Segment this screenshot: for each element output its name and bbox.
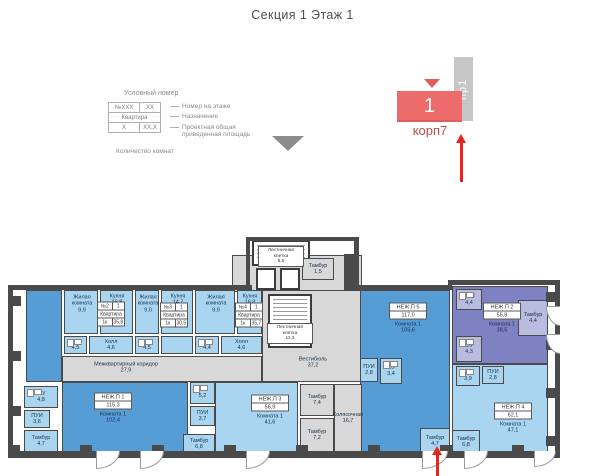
room-label-line: 2,8: [363, 370, 374, 376]
arrow-line: [436, 455, 439, 476]
unit5-pui: ПУИ2,8: [360, 358, 378, 382]
room-label-line: 4,6: [235, 345, 248, 351]
toilet-fixture: [27, 389, 34, 397]
room-label: Жилаякомната9,9: [72, 294, 93, 313]
room-label: Колясочная16,7: [333, 412, 363, 425]
living-room-2: Жилаякомната9,0: [135, 290, 159, 334]
hall-apt3: [161, 336, 193, 354]
unit-tag-line: НЕЖ.П 2: [484, 304, 520, 312]
room-label-line: 4,6: [105, 345, 118, 351]
sink-fixture: [466, 339, 474, 345]
room-label: ПУИ3,7: [197, 410, 208, 423]
unit5-wc: С/У3,4: [380, 358, 402, 384]
apt-tag-row: №31: [161, 304, 187, 312]
room-label-line: 5,2: [198, 393, 207, 399]
room-label-line: 4,4: [463, 300, 474, 306]
unit3-wc: С/У5,2: [190, 382, 215, 404]
apt-tag-cell: Квартира: [98, 311, 124, 318]
unit4-pui: ПУИ2,8: [482, 366, 504, 384]
floor-plan-page: Секция 1 Этаж 1 Условный номер №XXX XX К…: [0, 0, 605, 476]
stair-label: Лестничная клетка5,5: [258, 246, 304, 267]
room-label: Холл4,6: [235, 339, 248, 352]
toilet-fixture: [193, 385, 200, 393]
room-label: Тамбур7,2: [308, 429, 327, 442]
wc-apt3: С/У4,5: [135, 336, 159, 354]
apt4-tag: №41Квартира1к35,7: [235, 303, 263, 328]
tambour-top: Тамбур1,5: [302, 258, 334, 280]
apt-tag-cell: 1к: [161, 320, 176, 327]
unit1-wc: С/У4,8: [24, 386, 58, 408]
room-label: Тамбур1,5: [309, 263, 328, 276]
stair-upper: Лестничная клетка5,5: [252, 240, 310, 266]
wall: [358, 285, 452, 290]
room-label-line: 4,8: [37, 397, 46, 403]
unit1-strip: [26, 290, 62, 382]
apt-tag-cell: 1: [113, 303, 124, 310]
stair-label-line: 11,3: [270, 336, 310, 342]
unit-tag-line: 56,9: [252, 404, 288, 411]
apt2-tag: №21Квартира1к35,8: [97, 302, 125, 327]
apt-tag-cell: 1к: [236, 320, 251, 327]
sink-fixture: [466, 369, 474, 375]
room-label-line: 2,8: [487, 375, 498, 381]
apt-tag-row: 1к30,5: [161, 320, 187, 327]
apt-tag-cell: 35,7: [251, 320, 262, 327]
unit-tag-sub: Комната 1105,6: [389, 322, 427, 334]
arrow-head-icon: [432, 446, 442, 455]
room-label-line: 9,9: [206, 307, 227, 313]
unit2-tag: НЕЖ.П 255,8Комната 138,5: [483, 303, 521, 334]
unit1-tag: НЕЖ.П 1115,3Комната 1102,4: [94, 393, 132, 424]
room-label-line: 37,2: [299, 363, 327, 369]
unit-tag-subline: 38,5: [483, 328, 521, 334]
wall: [8, 285, 252, 290]
unit-tag-line: 115,3: [95, 402, 131, 409]
apt-tag-cell: 1к: [98, 319, 113, 326]
stair-main: Лестничная клетка11,3: [268, 294, 312, 348]
apt-tag-cell: 1: [251, 304, 262, 311]
hall-apt2: Холл4,6: [89, 336, 133, 354]
stair-label-line: 5,5: [261, 259, 301, 265]
wall: [246, 237, 358, 241]
room-label-line: 3,7: [197, 416, 208, 422]
wall: [354, 237, 359, 290]
unit2-tambour: Тамбур4,4: [518, 300, 548, 336]
elevator-2: [280, 268, 300, 290]
apt-tag-row: Квартира: [236, 312, 262, 320]
unit-tag-line: 117,0: [390, 312, 426, 319]
apt-tag-cell: 35,8: [113, 319, 124, 326]
toilet-fixture: [459, 369, 466, 377]
unit-tag-box: НЕЖ.П 462,1: [494, 403, 532, 420]
unit-tag-sub: Комната 141,6: [251, 414, 289, 426]
unit2-pui: ПУИ4,4: [456, 289, 482, 310]
unit-tag-sub: Комната 147,1: [494, 422, 532, 434]
unit-tag-line: НЕЖ.П 4: [495, 404, 531, 412]
room-label-line: 7,4: [308, 400, 327, 406]
wc-apt4: С/У4,4: [195, 336, 219, 354]
unit1-pui: ПУИ3,6: [24, 410, 50, 428]
sink-fixture: [205, 339, 213, 345]
stair-label-line: Лестничная клетка: [261, 248, 301, 259]
toilet-fixture: [138, 339, 145, 347]
room-label-line: 3,4: [387, 371, 396, 377]
apt-tag-row: №41: [236, 304, 262, 312]
unit3-pui: ПУИ3,7: [190, 406, 215, 426]
section-pointer-icon: [424, 79, 440, 88]
living-room-1: Жилаякомната9,9: [64, 290, 98, 334]
room-label-line: 4,3: [465, 349, 474, 355]
sink-fixture: [466, 292, 474, 298]
room-label-line: 16,7: [333, 418, 363, 424]
unit5-tag: НЕЖ.П 5117,0Комната 1105,6: [389, 303, 427, 334]
wall: [246, 237, 250, 290]
apt-tag-row: 1к35,8: [98, 319, 124, 326]
room-label: Тамбур7,4: [308, 394, 327, 407]
sink-fixture: [34, 389, 42, 395]
room-label: ПУИ2,8: [487, 369, 498, 382]
stair-label: Лестничная клетка11,3: [267, 323, 313, 344]
toilet-fixture: [383, 361, 390, 369]
room-label: ПУИ2,8: [363, 364, 374, 377]
unit4-tag: НЕЖ.П 462,1Комната 147,1: [494, 403, 532, 434]
unit2-wc: С/У4,3: [456, 336, 482, 362]
room-label-line: 1,5: [309, 269, 328, 275]
building-label: корп7: [399, 123, 461, 138]
stroller-room: Колясочная16,7: [334, 384, 362, 452]
elevator-1: [256, 268, 276, 290]
section-marker[interactable]: 1: [397, 91, 462, 122]
wc-apt2: С/У4,5: [64, 336, 87, 354]
unit-tag-box: НЕЖ.П 5117,0: [389, 303, 427, 320]
room-label-line: 3,6: [31, 419, 42, 425]
unit-tag-box: НЕЖ.П 1115,3: [94, 393, 132, 410]
unit-tag-line: НЕЖ.П 5: [390, 304, 426, 312]
apt-tag-cell: №2: [98, 303, 113, 310]
hall-apt4: Холл4,6: [221, 336, 262, 354]
arrow-head-icon: [456, 134, 466, 143]
unit-tag-line: НЕЖ.П 3: [252, 396, 288, 404]
toilet-fixture: [198, 339, 205, 347]
apt-tag-cell: 30,5: [176, 320, 187, 327]
unit-tag-sub: Комната 138,5: [483, 322, 521, 334]
room-label: ПУИ3,6: [31, 413, 42, 426]
unit4-wc: С/У3,9: [456, 366, 480, 386]
apt-tag-cell: №4: [236, 304, 251, 311]
unit-tag-line: НЕЖ.П 1: [95, 394, 131, 402]
section-number: 1: [424, 95, 435, 118]
apt-tag-cell: Квартира: [236, 312, 262, 319]
unit-tag-sub: Комната 1102,4: [94, 412, 132, 424]
door-swing: [464, 451, 488, 469]
wall: [448, 280, 560, 285]
room-label-line: 27,9: [94, 368, 158, 374]
apt-tag-cell: №3: [161, 304, 176, 311]
tambour-74: Тамбур7,4: [300, 384, 334, 416]
unit-tag-box: НЕЖ.П 356,9: [251, 395, 289, 412]
room-label: Жилаякомната9,0: [138, 294, 159, 313]
room-label-line: 4,4: [524, 318, 543, 324]
room-label-line: 9,9: [72, 307, 93, 313]
sink-fixture: [200, 385, 208, 391]
arrow-line: [460, 143, 463, 182]
sink-fixture: [145, 339, 153, 345]
toilet-fixture: [67, 339, 74, 347]
apt3-tag: №31Квартира1к30,5: [160, 303, 188, 328]
unit-tag-subline: 102,4: [94, 418, 132, 424]
unit-tag-subline: 41,6: [251, 420, 289, 426]
apt-tag-row: Квартира: [161, 312, 187, 320]
corridor: Межквартирный коридор27,9: [62, 356, 262, 382]
apt-tag-row: №21: [98, 303, 124, 311]
door-swing: [246, 451, 270, 469]
unit-tag-box: НЕЖ.П 255,8: [483, 303, 521, 320]
room-label: Жилаякомната9,9: [206, 294, 227, 313]
apt-tag-row: 1к35,7: [236, 320, 262, 327]
unit-tag-line: 62,1: [495, 412, 531, 419]
unit-tag-line: 55,8: [484, 312, 520, 319]
room-label-line: 9,0: [138, 307, 159, 313]
room-label: Тамбур4,4: [524, 312, 543, 325]
unit-tag-subline: 105,6: [389, 328, 427, 334]
apt-tag-row: Квартира: [98, 311, 124, 319]
door-swing: [96, 451, 120, 469]
toilet-fixture: [459, 339, 466, 347]
stair-label-line: Лестничная клетка: [270, 325, 310, 336]
living-room-3: Жилаякомната9,9: [195, 290, 235, 334]
wall-pilasters-left: [13, 296, 21, 446]
unit-tag-subline: 47,1: [494, 428, 532, 434]
unit3-tag: НЕЖ.П 356,9Комната 141,6: [251, 395, 289, 426]
room-label: Вестибюль37,2: [299, 357, 327, 370]
wall: [344, 254, 354, 290]
door-swing: [140, 451, 164, 469]
apt-tag-cell: Квартира: [161, 312, 187, 319]
sink-fixture: [390, 361, 398, 367]
sink-fixture: [74, 339, 82, 345]
room-label-line: 7,2: [308, 435, 327, 441]
room-label: Холл4,6: [105, 339, 118, 352]
door-swing: [534, 451, 556, 467]
apt-tag-cell: 1: [176, 304, 187, 311]
room-label: Межквартирный коридор27,9: [94, 362, 158, 375]
toilet-fixture: [459, 292, 466, 300]
